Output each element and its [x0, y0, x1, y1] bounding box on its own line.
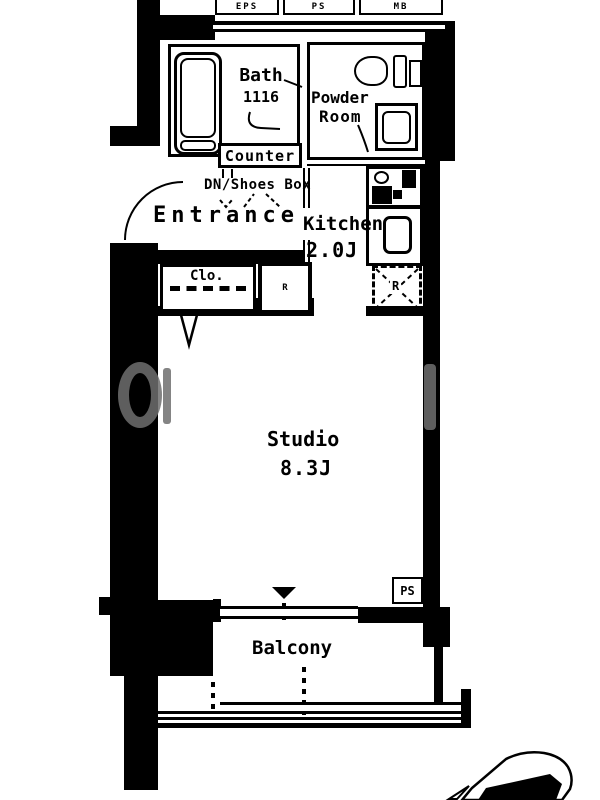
closet-label: Clo.: [190, 268, 224, 284]
watermark-ring: [118, 362, 162, 428]
balcony-window: [220, 606, 358, 619]
floor-plan: EPS PS MB Counter R PS: [0, 0, 600, 800]
stove-burner-pattern-2: [402, 170, 416, 188]
compass-tail: [449, 786, 469, 799]
shoes-box-label: DN/Shoes Box: [204, 177, 311, 193]
bath-size-label: 1116: [224, 89, 298, 106]
shaft-eps: EPS: [215, 0, 279, 15]
wall-bottom-right-band: [358, 607, 450, 623]
wall-left-block: [110, 600, 213, 676]
wall-top-step: [158, 15, 215, 40]
shaft-ps: PS: [283, 0, 355, 15]
compass-wedge: [478, 774, 562, 800]
stove-burner-pattern-3: [393, 190, 402, 199]
utility-box: R: [258, 262, 312, 314]
wall-right-lower: [423, 623, 450, 647]
balcony-rail-4: [153, 723, 470, 728]
studio-size-label: 8.3J: [280, 457, 332, 480]
plan-symbols: [0, 0, 600, 800]
refrigerator-label: R: [390, 280, 401, 294]
stove-burner-ring: [374, 171, 389, 184]
toilet-wall-unit: [409, 60, 422, 87]
wall-powder-kitchen: [307, 158, 425, 166]
watermark-bar-right: [424, 364, 436, 430]
balcony-rail-1: [220, 702, 468, 705]
wall-left-nub: [99, 597, 110, 615]
wall-right-top: [425, 21, 455, 161]
wall-left-lower-column: [124, 676, 158, 790]
studio-door-symbol: [181, 315, 197, 345]
toilet-tank: [393, 55, 407, 88]
balcony-rail-3: [153, 717, 470, 720]
studio-label: Studio: [267, 428, 339, 451]
shaft-mb: MB: [359, 0, 443, 15]
balcony-rail-post: [461, 689, 471, 728]
wall-left-lip: [110, 126, 137, 146]
kitchen-size-label: 2.0J: [306, 239, 358, 262]
toilet-bowl: [354, 56, 388, 86]
washer-pan-inner: [382, 111, 411, 144]
wall-balcony-right: [434, 647, 443, 705]
bathtub-deck: [180, 140, 216, 151]
bathtub-inner: [180, 58, 216, 138]
balcony-label: Balcony: [252, 638, 332, 660]
pipe-space-box: PS: [392, 577, 423, 604]
powder-room-label-2: Room: [319, 108, 362, 126]
stove-burner-pattern-1: [372, 186, 392, 204]
compass-outline: [462, 752, 572, 800]
counter-box: Counter: [218, 143, 302, 168]
closet-hanger-pole: [170, 286, 246, 291]
kitchen-label: Kitchen: [303, 214, 383, 236]
wall-left-top-column: [137, 0, 160, 146]
balcony-rail-2: [153, 711, 470, 714]
powder-room-label-1: Powder: [311, 89, 369, 107]
bath-room-label: Bath: [224, 66, 298, 87]
kitchen-sink-basin: [383, 216, 412, 254]
watermark-bar-left: [163, 368, 171, 424]
entrance-label: Entrance: [153, 203, 299, 228]
wall-corridor-band: [213, 21, 445, 32]
window-triangle-marker: [272, 587, 296, 599]
